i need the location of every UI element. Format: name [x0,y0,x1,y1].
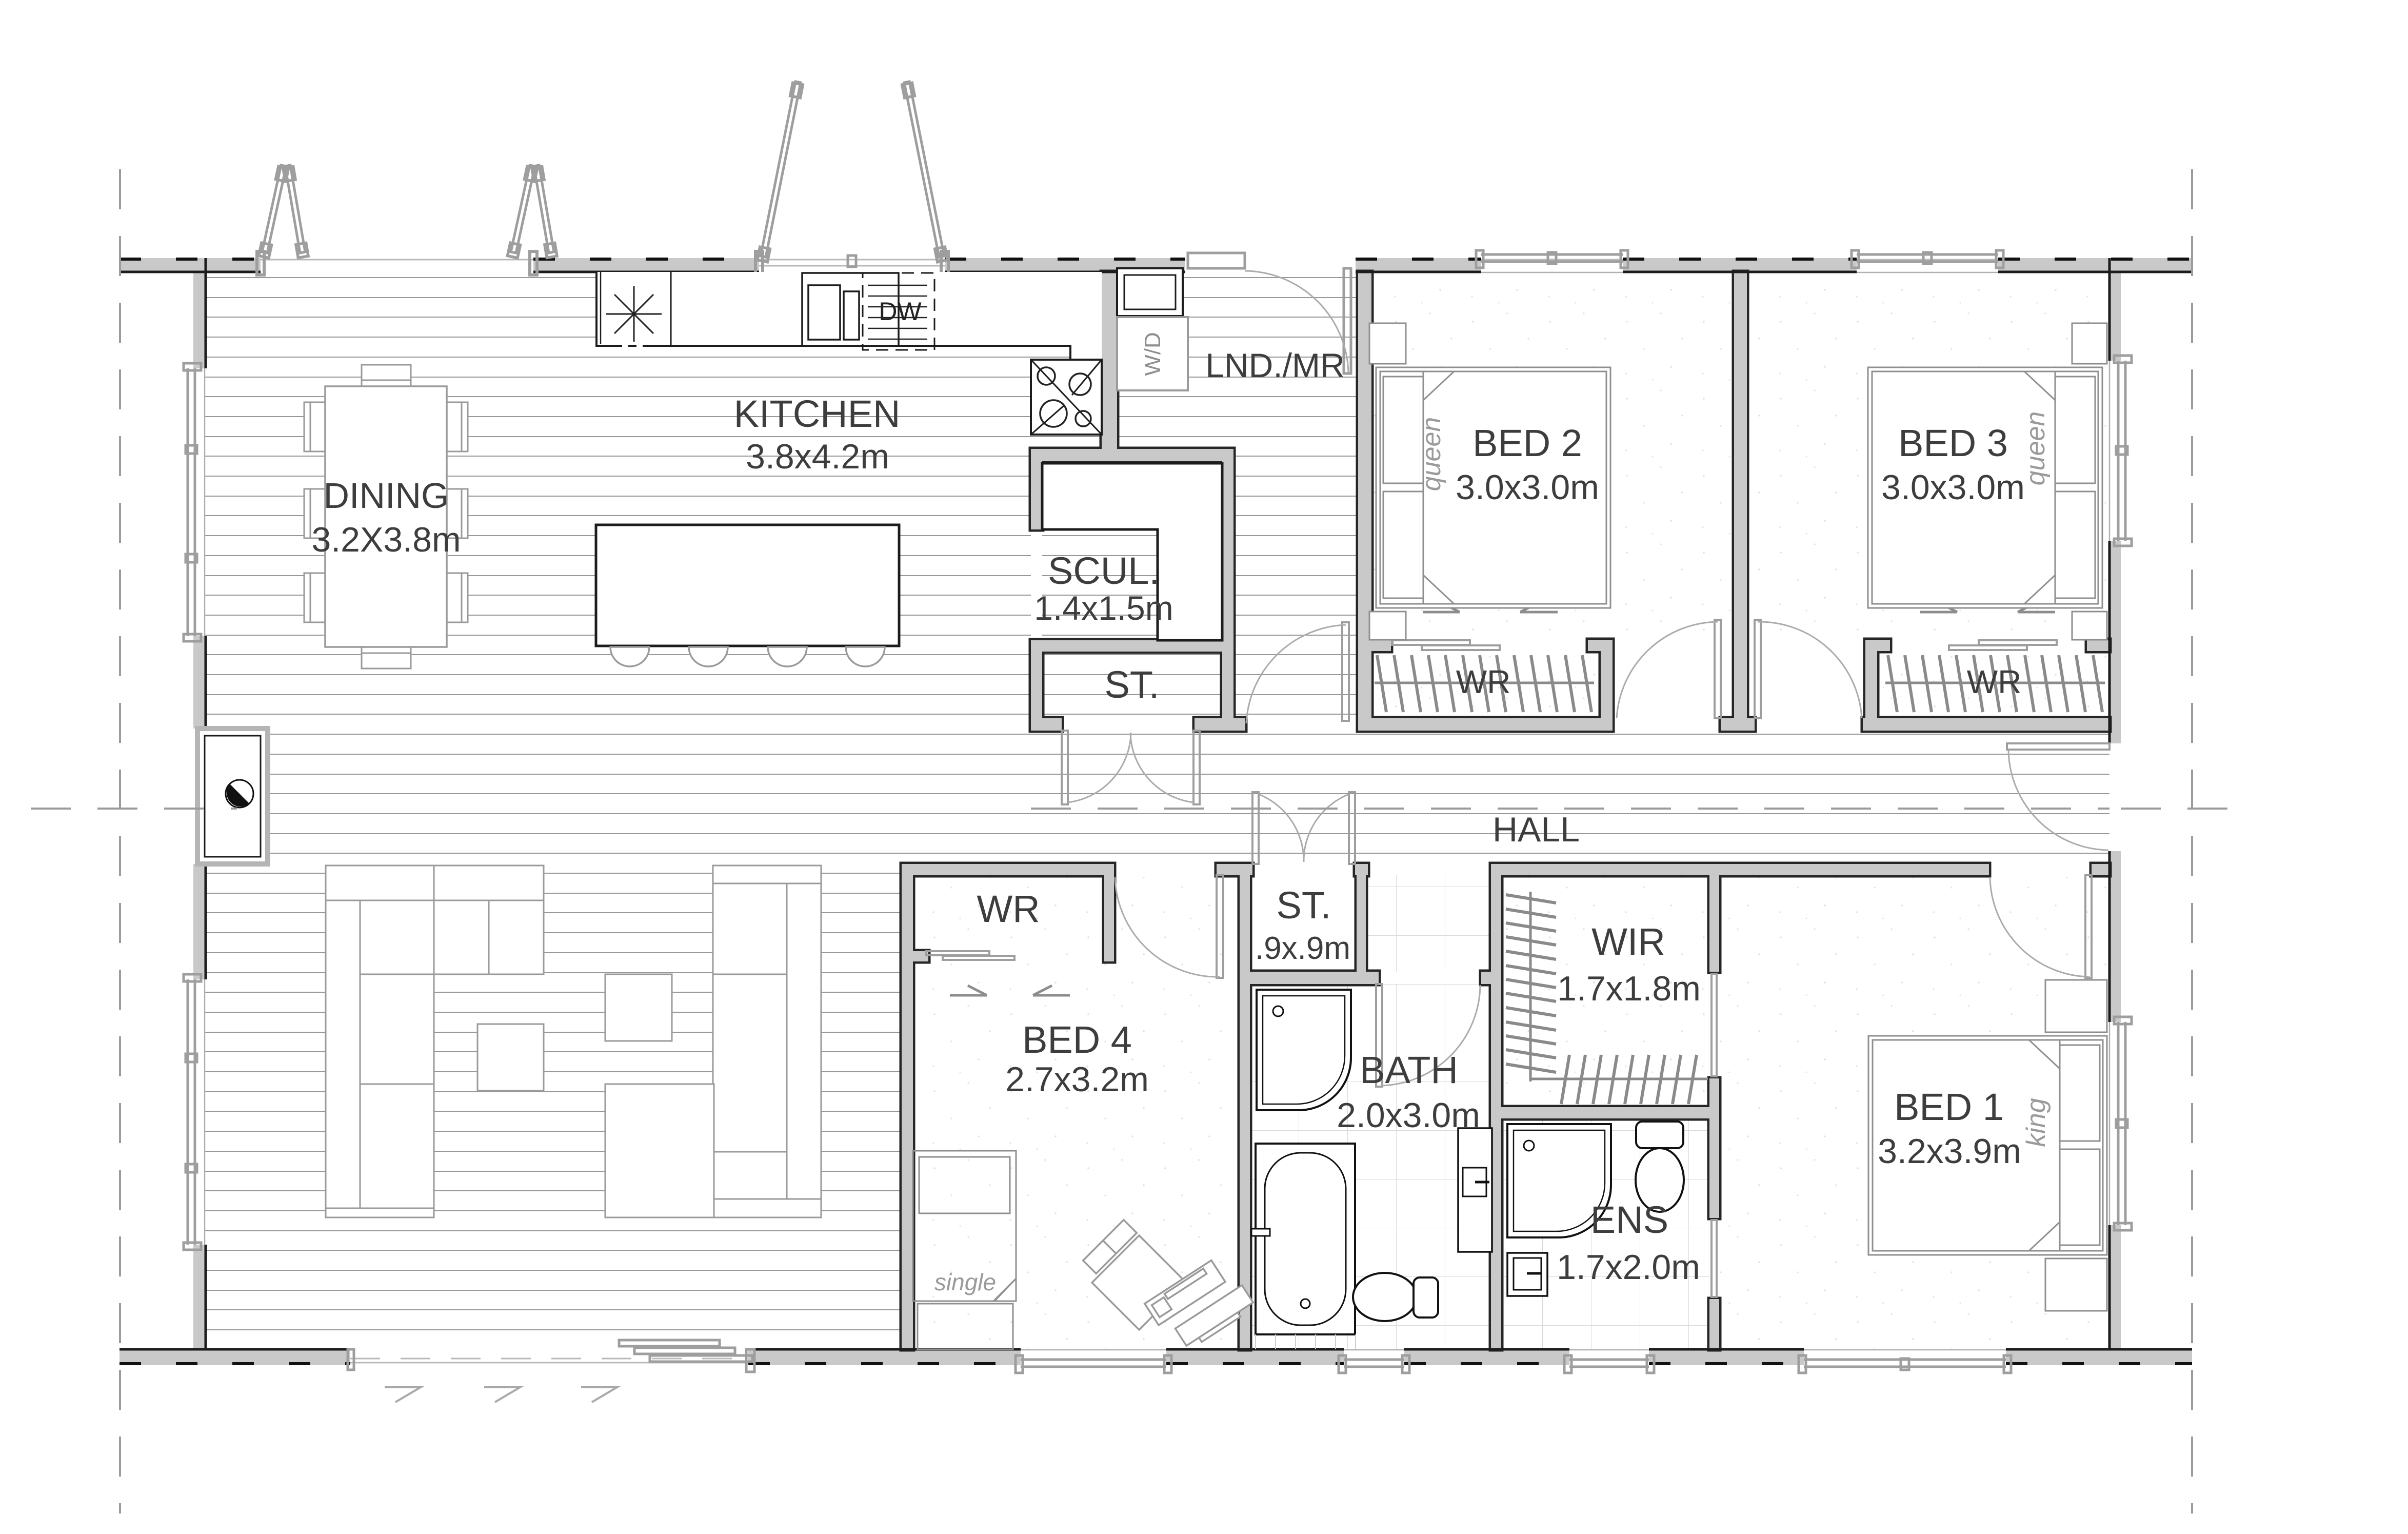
svg-text:3.2x3.9m: 3.2x3.9m [1878,1132,2021,1171]
svg-text:ENS: ENS [1590,1198,1668,1241]
svg-text:SCUL.: SCUL. [1048,549,1160,592]
svg-text:WIR: WIR [1591,920,1665,963]
svg-text:3.2X3.8m: 3.2X3.8m [311,520,461,559]
svg-text:BED 2: BED 2 [1472,422,1582,464]
svg-text:BATH: BATH [1360,1049,1458,1091]
svg-text:DW: DW [879,297,922,326]
svg-text:2.0x3.0m: 2.0x3.0m [1337,1096,1480,1135]
svg-text:LND./MR: LND./MR [1205,346,1344,384]
svg-text:BED 4: BED 4 [1022,1018,1132,1061]
svg-text:queen: queen [2021,411,2051,486]
svg-text:WR: WR [1967,663,2022,700]
svg-text:ST.: ST. [1277,884,1331,927]
svg-text:BED 1: BED 1 [1894,1086,2004,1128]
svg-text:W/D: W/D [1140,332,1165,376]
svg-text:HALL: HALL [1492,810,1580,849]
svg-text:single: single [934,1269,996,1295]
svg-text:KITCHEN: KITCHEN [734,392,901,435]
svg-text:BED 3: BED 3 [1898,422,2008,464]
svg-text:king: king [2021,1098,2051,1147]
svg-text:.9x.9m: .9x.9m [1255,931,1350,966]
svg-text:ST.: ST. [1105,663,1160,706]
svg-text:WR: WR [977,888,1040,930]
svg-text:3.0x3.0m: 3.0x3.0m [1881,468,2025,507]
svg-text:1.7x1.8m: 1.7x1.8m [1557,969,1701,1008]
svg-text:WR: WR [1456,663,1511,700]
svg-text:3.8x4.2m: 3.8x4.2m [746,437,889,476]
svg-text:DINING: DINING [324,476,449,516]
svg-text:2.7x3.2m: 2.7x3.2m [1005,1060,1149,1099]
svg-text:1.7x2.0m: 1.7x2.0m [1557,1248,1700,1287]
svg-text:3.0x3.0m: 3.0x3.0m [1456,468,1599,507]
svg-text:1.4x1.5m: 1.4x1.5m [1034,589,1173,627]
svg-text:queen: queen [1417,417,1446,491]
